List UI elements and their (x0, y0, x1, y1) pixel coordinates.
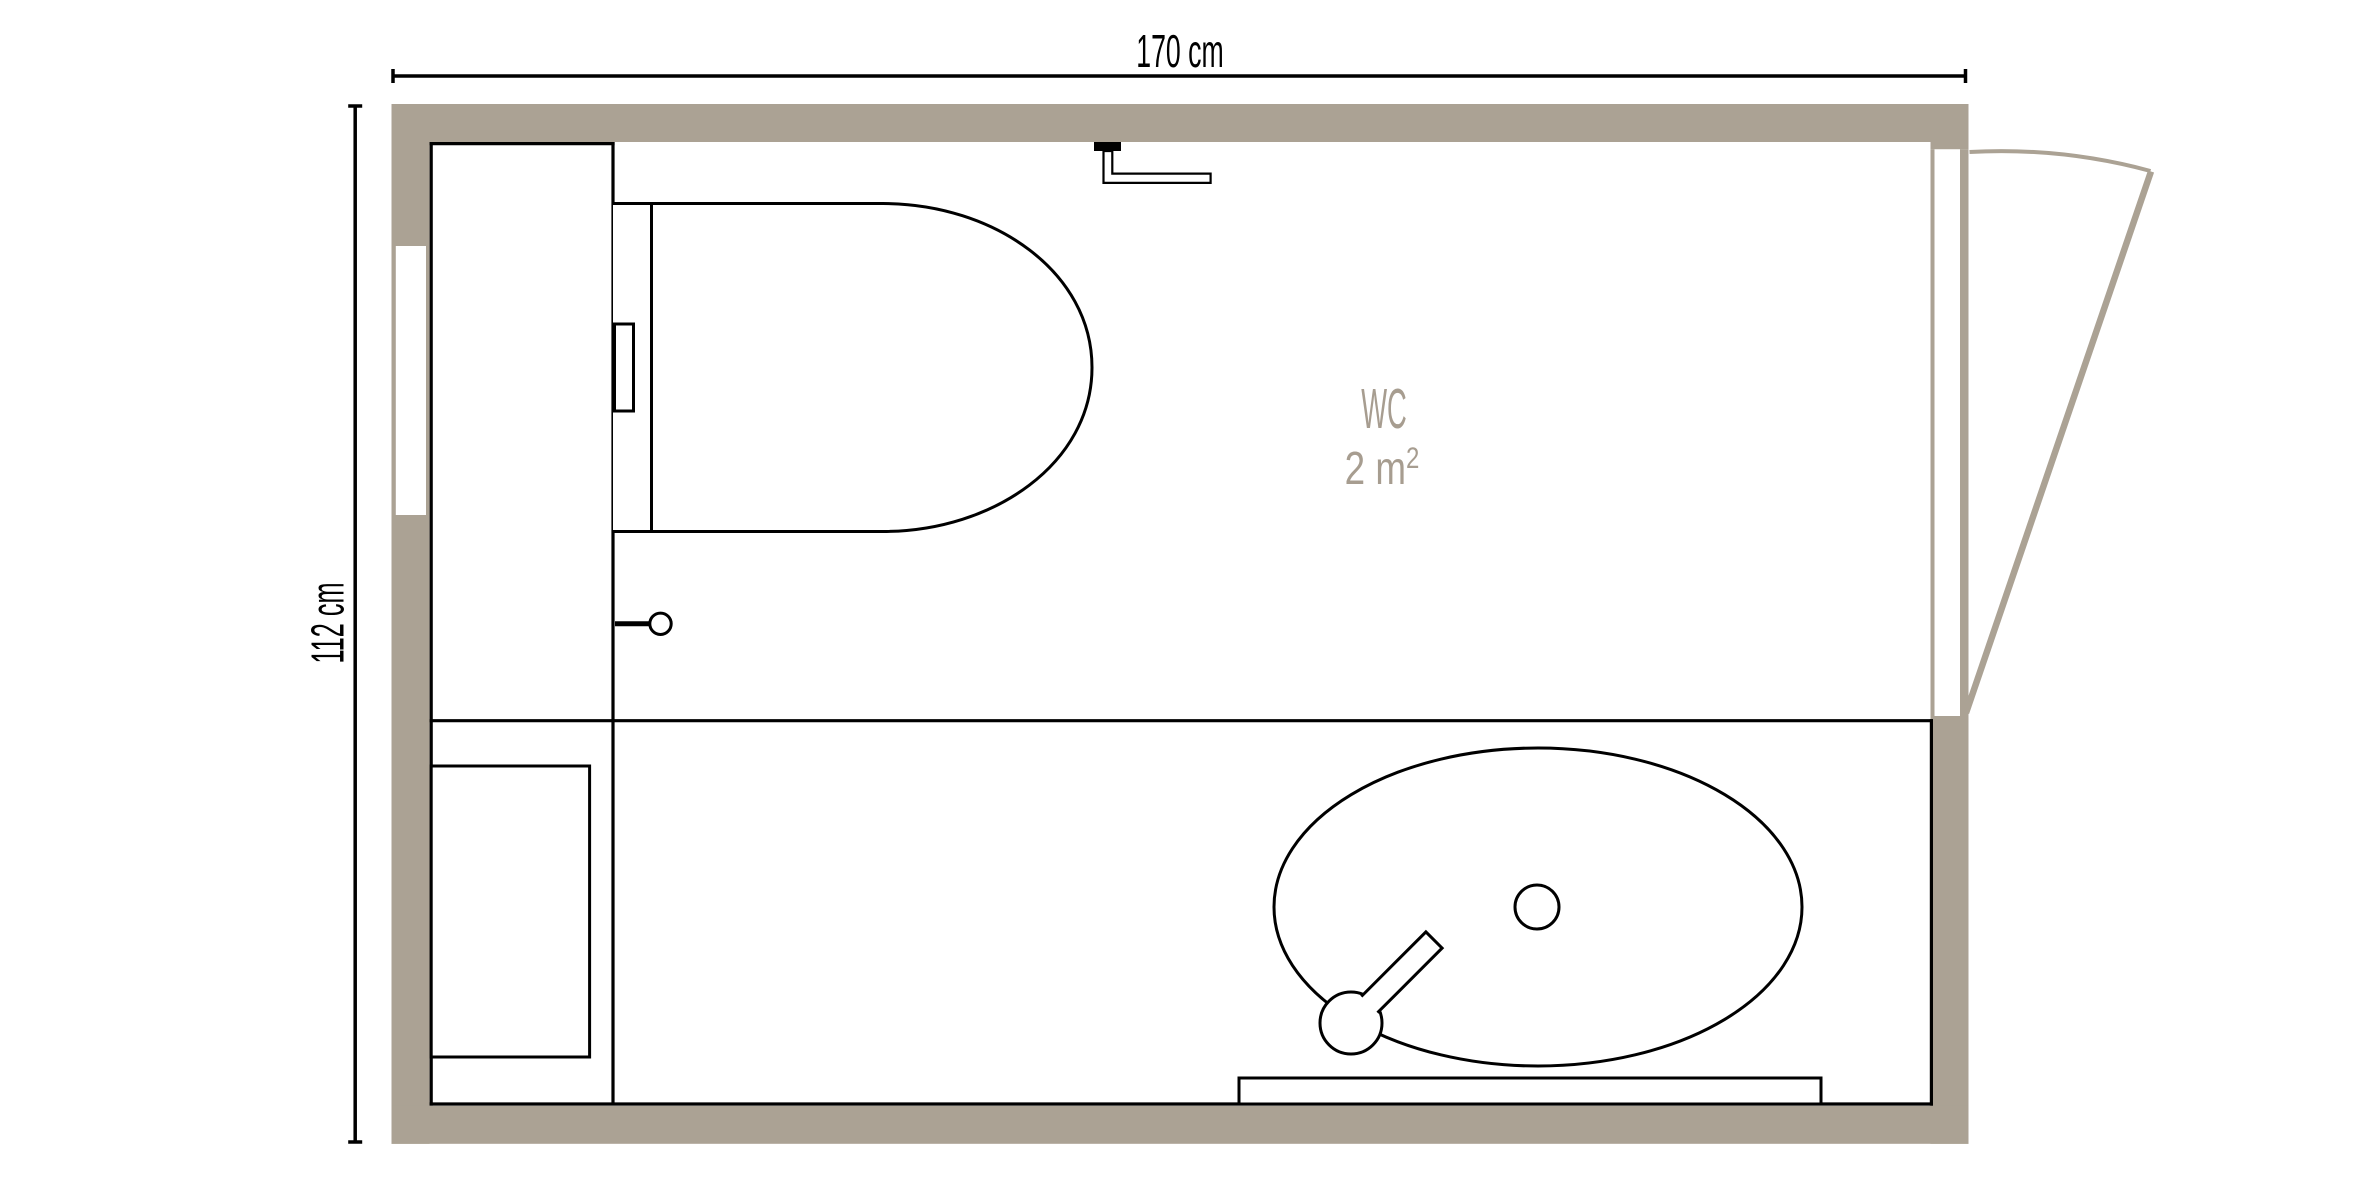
svg-text:112 cm: 112 cm (301, 582, 353, 663)
svg-text:WC: WC (1361, 378, 1407, 440)
svg-text:170 cm: 170 cm (1136, 25, 1223, 76)
